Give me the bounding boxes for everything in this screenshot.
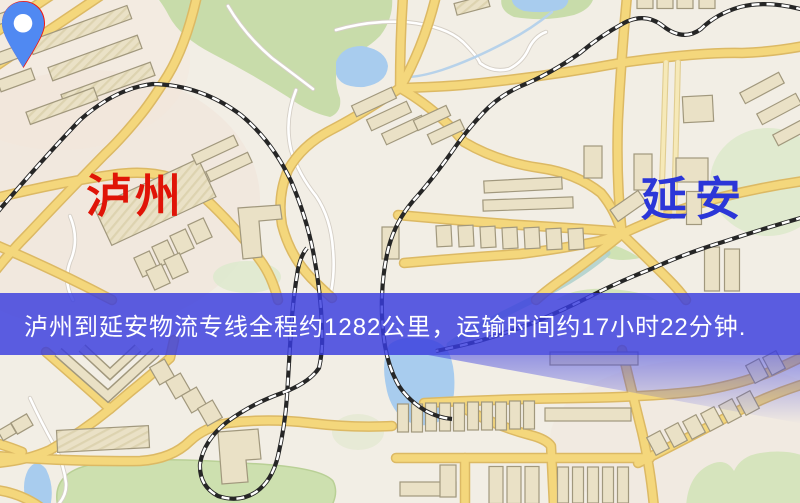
- route-info-banner: 泸州到延安物流专线全程约1282公里，运输时间约17小时22分钟.: [0, 293, 800, 355]
- destination-pin-icon[interactable]: [0, 0, 46, 70]
- origin-city-label: 泸州: [86, 173, 184, 219]
- map-canvas: [0, 0, 800, 503]
- route-info-text: 泸州到延安物流专线全程约1282公里，运输时间约17小时22分钟.: [24, 307, 746, 342]
- map-viewport[interactable]: 泸州到延安物流专线全程约1282公里，运输时间约17小时22分钟. 泸州 延安: [0, 0, 800, 503]
- destination-city-label: 延安: [641, 176, 749, 222]
